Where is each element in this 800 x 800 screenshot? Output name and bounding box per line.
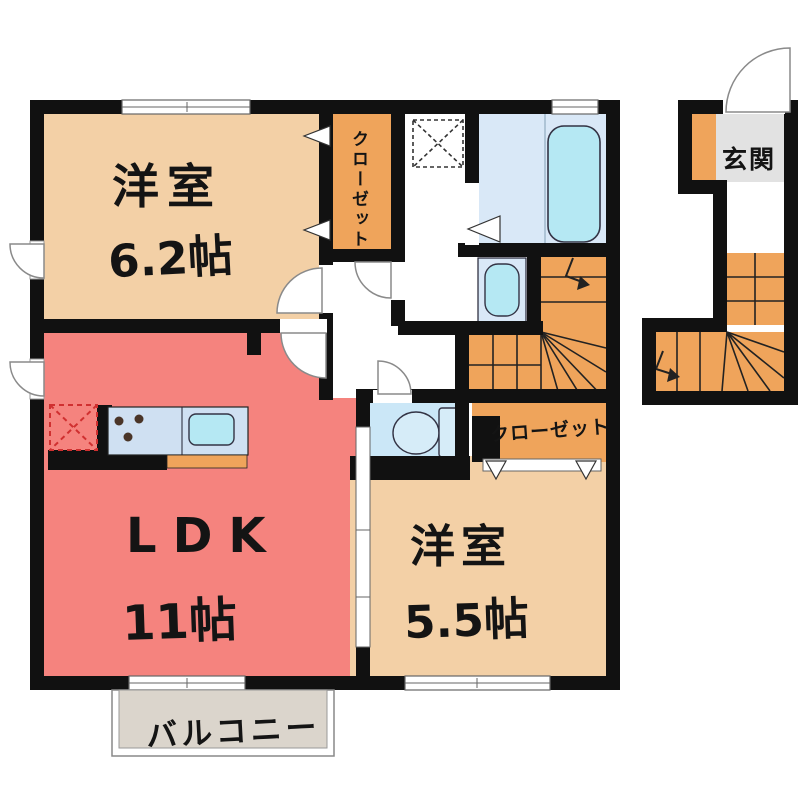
sliding-door-ldk-bedroom2	[356, 427, 370, 647]
door-arc-exterior-2	[10, 362, 44, 396]
door-arc-toilet	[378, 361, 411, 394]
opening-washroom-door	[391, 262, 405, 300]
wall-ldk-bedroom2-upper	[356, 398, 370, 427]
wall-entrance-right	[784, 100, 798, 405]
closet-upper-label: クローゼット	[346, 130, 371, 248]
wall-under-washbasin	[398, 321, 543, 335]
washing-machine-space-icon	[413, 120, 463, 167]
window-bedroom1	[122, 100, 250, 114]
kitchen-sink	[189, 414, 234, 445]
window-bathroom	[552, 100, 598, 114]
stove-burner-icon	[135, 415, 144, 424]
window-balcony-slider	[129, 676, 245, 690]
opening-bathroom-door	[465, 183, 479, 245]
floor-plan-drawing	[0, 0, 800, 800]
wall-entrance-left-upper	[678, 100, 692, 192]
window-bedroom2	[405, 676, 550, 690]
stairs-upper-run	[534, 250, 606, 332]
door-arc-entrance	[726, 48, 790, 112]
wall-closet-upper-bottom	[326, 249, 405, 262]
wall-entrance-corridor-left	[713, 180, 727, 332]
stove-burner-icon	[124, 433, 133, 442]
bedroom1-name-label: 洋室	[112, 148, 222, 217]
washbasin-bowl-icon	[485, 264, 519, 316]
wall-ldk-bedroom2-lower	[356, 647, 370, 683]
ldk-name-label: LDK	[126, 508, 282, 564]
toilet-bowl-icon	[393, 412, 439, 454]
kitchen-cabinet	[167, 455, 247, 468]
bedroom2-name-label: 洋室	[410, 510, 512, 575]
stove-burner-icon	[115, 417, 124, 426]
bedroom2-size-label: 5.5帖	[403, 582, 530, 651]
wall-washroom-west-upper	[391, 107, 405, 262]
bathtub-icon	[548, 126, 600, 242]
door-arc-exterior-1	[10, 244, 44, 278]
floor-plan: 洋室 6.2帖 LDK 11帖 洋室 5.5帖 クローゼット クローゼット 玄関…	[0, 0, 800, 800]
balcony-label: バルコニー	[145, 701, 322, 755]
entrance-label: 玄関	[722, 140, 776, 176]
wall-stub-ldk	[247, 326, 261, 355]
opening-ldk-door	[280, 319, 327, 333]
entrance-shoe-cabinet	[692, 114, 716, 182]
wall-entrance-bottom	[642, 391, 798, 405]
ldk-size-label: 11帖	[121, 580, 238, 654]
door-arc-washroom	[355, 262, 391, 298]
bedroom1-size-label: 6.2帖	[106, 219, 234, 290]
